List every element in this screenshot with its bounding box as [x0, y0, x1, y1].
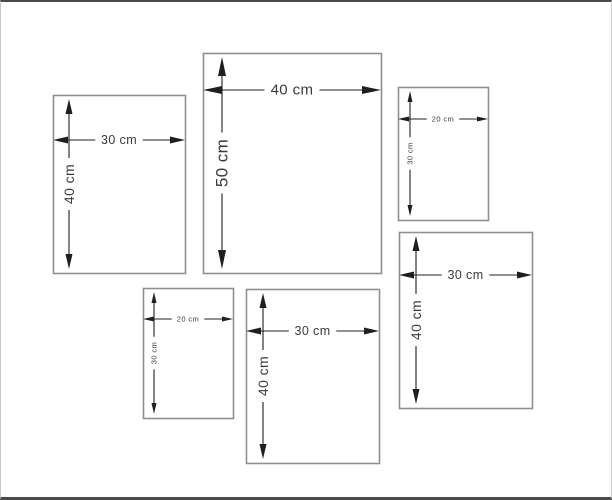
panel-30x40-right: 30 cm40 cm [399, 233, 533, 409]
height-label: 40 cm [61, 164, 77, 204]
width-label: 30 cm [101, 133, 137, 147]
panel-30x40-bottom-center: 30 cm40 cm [246, 290, 380, 464]
arrowhead-left-icon [399, 272, 414, 279]
arrowhead-left-icon [203, 86, 222, 94]
width-label: 40 cm [271, 82, 314, 99]
width-label: 30 cm [294, 324, 330, 338]
panel-40x50-top-center: 40 cm50 cm [203, 54, 382, 274]
arrowhead-left-icon [143, 317, 154, 322]
width-label: 20 cm [177, 315, 199, 324]
height-label: 30 cm [150, 342, 159, 364]
arrowhead-down-icon [66, 254, 73, 269]
panel-dimensions-diagram: 30 cm40 cm40 cm50 cm20 cm30 cm30 cm40 cm… [1, 2, 611, 497]
height-label: 40 cm [255, 356, 271, 396]
arrowhead-up-icon [408, 91, 413, 102]
arrowhead-up-icon [218, 57, 226, 76]
arrowhead-right-icon [364, 328, 379, 335]
arrowhead-right-icon [517, 272, 532, 279]
arrowhead-right-icon [170, 137, 185, 144]
arrowhead-down-icon [260, 444, 267, 459]
height-label: 40 cm [408, 300, 424, 340]
arrowhead-up-icon [260, 293, 267, 308]
arrowhead-left-icon [246, 328, 261, 335]
arrowhead-down-icon [408, 205, 413, 216]
arrowhead-right-icon [362, 86, 381, 94]
arrowhead-left-icon [398, 117, 409, 122]
arrowhead-up-icon [413, 236, 420, 251]
arrowhead-up-icon [152, 292, 157, 303]
arrowhead-down-icon [152, 403, 157, 414]
arrowhead-right-icon [222, 317, 233, 322]
panel-30x40-top-left: 30 cm40 cm [53, 96, 186, 274]
arrowhead-down-icon [218, 250, 226, 269]
panel-20x30-bottom-left: 20 cm30 cm [143, 289, 234, 419]
panel-20x30-top-right: 20 cm30 cm [398, 88, 489, 221]
diagram-frame: 30 cm40 cm40 cm50 cm20 cm30 cm30 cm40 cm… [0, 0, 612, 500]
height-label: 30 cm [406, 142, 415, 164]
arrowhead-down-icon [413, 389, 420, 404]
arrowhead-left-icon [53, 137, 68, 144]
height-label: 50 cm [213, 139, 232, 187]
width-label: 20 cm [432, 115, 454, 124]
arrowhead-right-icon [477, 117, 488, 122]
arrowhead-up-icon [66, 99, 73, 114]
width-label: 30 cm [447, 268, 483, 282]
